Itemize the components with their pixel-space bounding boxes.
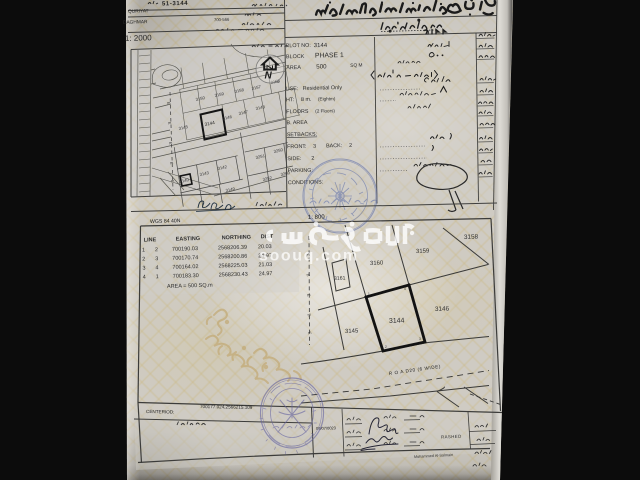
svg-text:2: 2 xyxy=(349,143,352,149)
svg-text:E: E xyxy=(307,331,313,335)
svg-text:3: 3 xyxy=(313,144,316,150)
svg-text:TM: TM xyxy=(275,80,280,84)
svg-text:PARKING:: PARKING: xyxy=(288,168,314,175)
svg-text:1: 1 xyxy=(142,248,145,254)
svg-text:R O A D20 (6 WIDE): R O A D20 (6 WIDE) xyxy=(388,364,441,376)
svg-text:3159: 3159 xyxy=(416,249,430,255)
svg-text:3161: 3161 xyxy=(334,276,346,282)
svg-text:1: 2000: 1: 2000 xyxy=(125,33,152,43)
svg-text:700164.02: 700164.02 xyxy=(172,264,198,271)
svg-text:1: 800: 1: 800 xyxy=(308,215,325,221)
svg-text:2: 2 xyxy=(155,247,158,253)
svg-text:WGS 84 40N: WGS 84 40N xyxy=(150,218,181,225)
svg-text:AREA: AREA xyxy=(286,65,301,71)
svg-text:3145: 3145 xyxy=(345,329,359,335)
svg-text:3144: 3144 xyxy=(389,317,405,325)
svg-text:HT:: HT: xyxy=(286,97,294,103)
svg-text:24.97: 24.97 xyxy=(259,271,273,277)
svg-text:700-566: 700-566 xyxy=(214,17,230,22)
svg-text:N: N xyxy=(265,71,273,82)
svg-text:DAGHMAR: DAGHMAR xyxy=(123,19,148,26)
svg-text:BACK:: BACK: xyxy=(326,143,342,149)
svg-text:2568200.86: 2568200.86 xyxy=(218,254,247,261)
svg-text:3160: 3160 xyxy=(370,261,384,267)
svg-text:EASTING: EASTING xyxy=(176,236,201,243)
svg-text:700177.024,2566215.109: 700177.024,2566215.109 xyxy=(200,404,253,410)
svg-text:3158: 3158 xyxy=(464,233,479,241)
svg-text:4: 4 xyxy=(404,287,406,291)
svg-text:BLOCK: BLOCK xyxy=(286,54,305,60)
svg-text:(2 Floors): (2 Floors) xyxy=(315,108,335,113)
svg-text:4: 4 xyxy=(155,265,158,271)
svg-text:soouq.com: soouq.com xyxy=(259,248,359,265)
svg-text:3: 3 xyxy=(155,256,158,262)
svg-text:E: E xyxy=(306,273,312,277)
svg-text:Mohammed Al-Salmain: Mohammed Al-Salmain xyxy=(414,453,453,459)
svg-text:8 m.: 8 m. xyxy=(301,97,312,103)
svg-text:2: 2 xyxy=(311,156,314,162)
svg-text:USE:: USE: xyxy=(286,86,299,92)
svg-text:2: 2 xyxy=(142,257,145,263)
svg-text:700183.30: 700183.30 xyxy=(173,273,199,280)
svg-text:700170.74: 700170.74 xyxy=(172,255,198,262)
svg-text:700190.03: 700190.03 xyxy=(172,246,198,253)
svg-text:SETBACKS:: SETBACKS: xyxy=(287,132,317,139)
svg-text:3: 3 xyxy=(419,337,421,341)
svg-text:3: 3 xyxy=(142,266,145,272)
svg-text:B. AREA: B. AREA xyxy=(286,120,308,126)
svg-text:NORTHING: NORTHING xyxy=(222,235,251,242)
svg-text:E: E xyxy=(306,293,312,297)
svg-text:LINE: LINE xyxy=(144,237,157,243)
svg-text:51-3144: 51-3144 xyxy=(162,1,188,8)
svg-text:2568225.03: 2568225.03 xyxy=(218,263,247,270)
svg-text:SQ M: SQ M xyxy=(350,63,362,69)
svg-text:PLOT NO:: PLOT NO: xyxy=(286,43,311,50)
svg-text:3144: 3144 xyxy=(314,43,328,49)
svg-text:RASHED: RASHED xyxy=(441,434,462,440)
svg-text:SIDE:: SIDE: xyxy=(287,156,301,162)
svg-text:500: 500 xyxy=(316,63,327,70)
svg-text:2568230.43: 2568230.43 xyxy=(219,272,248,279)
svg-text:PHASE 1: PHASE 1 xyxy=(315,52,344,60)
svg-text:4: 4 xyxy=(143,275,146,281)
svg-text:2568206.39: 2568206.39 xyxy=(218,245,247,252)
svg-text:QURIYAT: QURIYAT xyxy=(128,8,149,15)
svg-text:1: 1 xyxy=(368,292,370,296)
svg-text:CENTERIOD:: CENTERIOD: xyxy=(146,409,174,414)
svg-text:3146: 3146 xyxy=(435,305,450,313)
svg-text:FRONT:: FRONT: xyxy=(287,144,307,150)
svg-text:FLOORS: FLOORS xyxy=(286,109,309,116)
svg-text:(Eightm): (Eightm) xyxy=(318,96,336,101)
svg-text:Residential Only: Residential Only xyxy=(303,85,343,92)
svg-text:1: 1 xyxy=(156,274,159,280)
svg-text:2: 2 xyxy=(385,345,387,349)
